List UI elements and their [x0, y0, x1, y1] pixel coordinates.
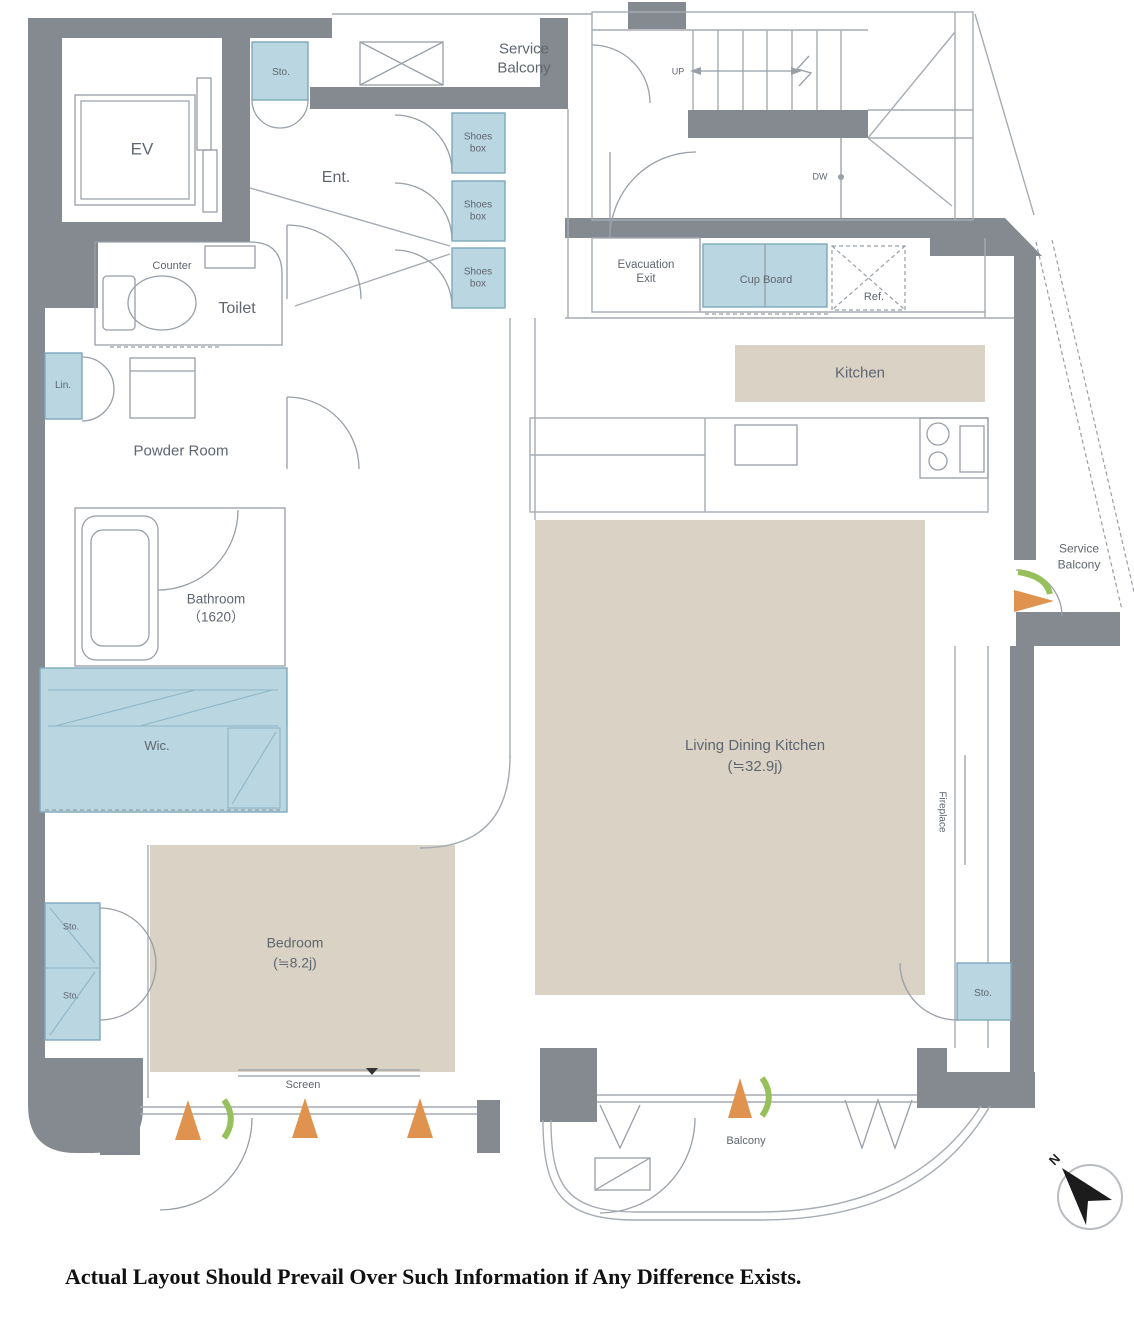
- label-sto-bottom-right: Sto.: [974, 988, 992, 1001]
- label-stairs-up: UP: [672, 66, 685, 77]
- label-service-balcony-top: Service Balcony: [497, 40, 550, 78]
- staircase: [332, 12, 1034, 220]
- bathtub: [82, 516, 158, 660]
- label-bedroom: Bedroom (≒8.2j): [267, 933, 324, 972]
- disclaimer-text: Actual Layout Should Prevail Over Such I…: [65, 1263, 801, 1291]
- north-arrow-icon: [1062, 1168, 1112, 1225]
- floor-plan-page: Service Balcony Sto. EV Ent. Shoes box S…: [0, 0, 1134, 1332]
- bedroom-storage: [45, 903, 156, 1040]
- label-sto-left-lower: Sto.: [63, 990, 79, 1001]
- kitchen-counter: [530, 418, 988, 512]
- bathroom: [75, 508, 285, 666]
- plant-cone-icon: [407, 1098, 433, 1138]
- label-shoes-box-3: Shoes box: [464, 267, 492, 290]
- label-ev: EV: [131, 138, 154, 159]
- label-wic: Wic.: [144, 738, 169, 754]
- label-balcony: Balcony: [726, 1135, 765, 1149]
- label-toilet: Toilet: [218, 299, 255, 319]
- label-evacuation-exit: Evacuation Exit: [618, 259, 675, 287]
- label-screen: Screen: [286, 1079, 321, 1093]
- plant-leaf-icon: [1018, 572, 1050, 594]
- plants-row: [175, 1078, 769, 1140]
- entrance: [250, 188, 450, 306]
- label-shoes-box-2: Shoes box: [464, 200, 492, 223]
- plant-cone-icon: [728, 1078, 752, 1118]
- label-sto-left-upper: Sto.: [63, 921, 79, 932]
- label-counter: Counter: [152, 260, 191, 274]
- service-balcony-top-hatch: [360, 42, 443, 85]
- label-service-balcony-right: Service Balcony: [1058, 541, 1101, 572]
- plant-leaf-icon: [762, 1078, 769, 1116]
- plant-cone-icon: [175, 1100, 201, 1140]
- label-stairs-down: DW: [813, 171, 828, 182]
- label-cup-board: Cup Board: [740, 274, 793, 288]
- label-powder-room: Powder Room: [133, 443, 228, 462]
- label-fireplace: Fireplace: [935, 791, 948, 832]
- label-living-dining-kitchen: Living Dining Kitchen (≒32.9j): [685, 735, 825, 777]
- plant-leaf-icon: [224, 1100, 231, 1138]
- toilet-fixture: [128, 276, 196, 330]
- plant-cone-icon: [292, 1098, 318, 1138]
- label-lin: Lin.: [55, 380, 71, 393]
- floor-plan-drawing: [0, 0, 1134, 1332]
- label-bathroom: Bathroom （1620）: [187, 590, 246, 625]
- toilet-room: [95, 242, 282, 345]
- label-kitchen: Kitchen: [835, 365, 885, 384]
- label-sto-top: Sto.: [272, 67, 290, 80]
- label-ref: Ref.: [864, 291, 884, 305]
- washbasin: [130, 358, 195, 418]
- north-compass: [1058, 1165, 1122, 1229]
- label-shoes-box-1: Shoes box: [464, 132, 492, 155]
- label-ent: Ent.: [322, 168, 350, 188]
